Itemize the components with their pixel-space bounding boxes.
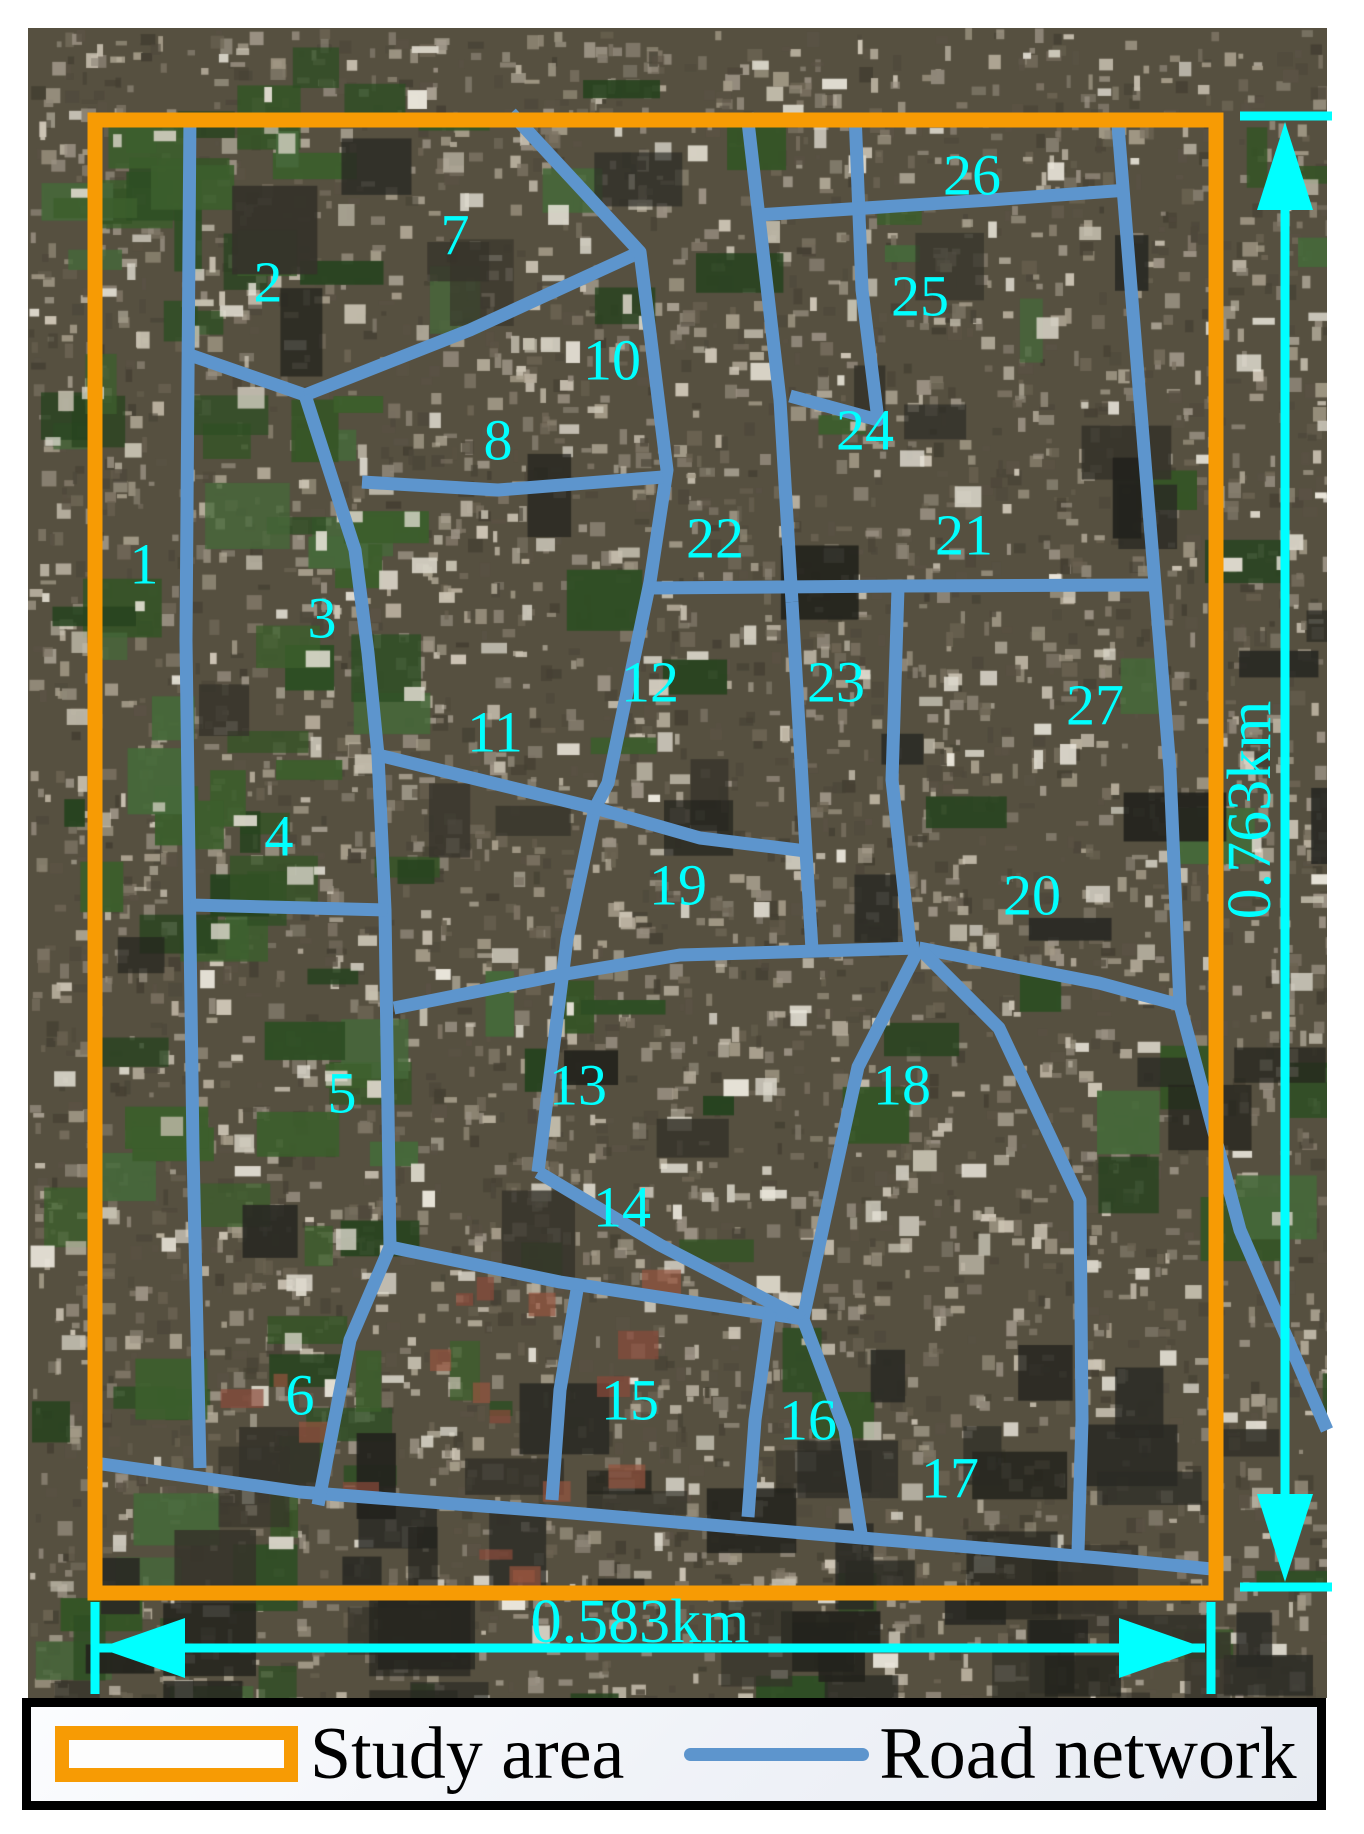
road-path — [362, 477, 663, 490]
road-network-swatch-icon — [684, 1748, 869, 1761]
legend-entry-study-area: Study area — [31, 1717, 624, 1791]
legend-entry-road-network: Road network — [624, 1717, 1296, 1791]
map-annotations: 1234567810111213141516171819202122232425… — [88, 113, 1332, 1694]
vertical-dim-label: 0.763km — [1216, 701, 1284, 920]
road-path — [790, 113, 878, 420]
region-label: 15 — [601, 1368, 659, 1433]
road-path — [748, 1312, 770, 1517]
road-path — [88, 1462, 1222, 1570]
road-path — [552, 1290, 577, 1500]
region-label: 13 — [549, 1053, 607, 1118]
road-path — [190, 355, 305, 395]
road-path — [650, 585, 1155, 588]
region-label: 10 — [583, 328, 641, 393]
region-label: 8 — [484, 408, 513, 473]
road-path — [803, 948, 919, 1319]
region-label: 23 — [807, 650, 865, 715]
region-label: 20 — [1003, 863, 1061, 928]
road-path — [747, 113, 792, 602]
region-label: 6 — [286, 1363, 315, 1428]
region-label: 21 — [935, 503, 993, 568]
region-label: 14 — [593, 1175, 651, 1240]
region-label: 4 — [265, 804, 294, 869]
road-path — [394, 948, 919, 1008]
region-label: 12 — [621, 650, 679, 715]
region-label: 26 — [943, 143, 1001, 208]
region-label: 22 — [686, 506, 744, 571]
dimension-horizontal-arrowhead-icon — [1119, 1618, 1205, 1678]
road-path — [190, 905, 388, 910]
region-label: 17 — [921, 1446, 979, 1511]
region-label: 1 — [130, 532, 159, 597]
dimension-vertical-arrowhead-icon — [1257, 122, 1313, 210]
region-label: 18 — [873, 1053, 931, 1118]
region-label: 16 — [779, 1388, 837, 1453]
legend: Study area Road network — [22, 1698, 1326, 1810]
study-area-figure: 1234567810111213141516171819202122232425… — [0, 0, 1364, 1834]
region-label: 3 — [308, 586, 337, 651]
region-label: 24 — [836, 398, 894, 463]
region-label: 27 — [1066, 673, 1124, 738]
road-path — [892, 588, 910, 945]
road-path — [186, 113, 200, 1468]
region-label: 25 — [891, 264, 949, 329]
region-label: 11 — [467, 700, 523, 765]
legend-label: Study area — [310, 1717, 624, 1791]
road-path — [919, 948, 1180, 1005]
road-path — [318, 1247, 390, 1505]
dimension-horizontal-arrowhead-icon — [99, 1618, 185, 1678]
map-overlay: 1234567810111213141516171819202122232425… — [0, 0, 1364, 1834]
legend-label: Road network — [879, 1717, 1296, 1791]
region-label: 7 — [441, 203, 470, 268]
dimension-vertical-arrowhead-icon — [1257, 1494, 1313, 1582]
study-area-swatch-icon — [55, 1726, 298, 1782]
horizontal-dim-label: 0.583km — [531, 1588, 750, 1656]
region-label: 19 — [649, 853, 707, 918]
region-label: 2 — [254, 250, 283, 315]
region-label: 5 — [328, 1061, 357, 1126]
